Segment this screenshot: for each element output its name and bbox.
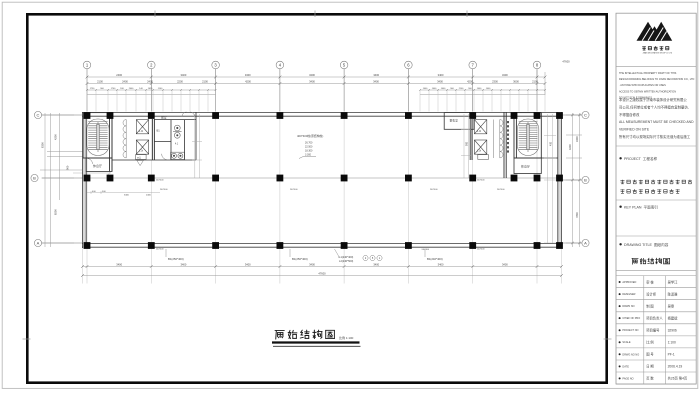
svg-text:DRAWING TITLE 图纸内容: DRAWING TITLE 图纸内容: [624, 242, 669, 247]
svg-text:本设计之版权属于济南市装饰设计研究有限公: 本设计之版权属于济南市装饰设计研究有限公: [619, 97, 687, 102]
svg-text:2200: 2200: [177, 79, 183, 83]
svg-text:A: A: [37, 241, 40, 246]
svg-text:2400: 2400: [147, 79, 153, 83]
svg-text:32906: 32906: [668, 329, 677, 333]
svg-text:240*400: 240*400: [156, 248, 164, 250]
svg-text:JINAN DECORATION GROUP CO LTD: JINAN DECORATION GROUP CO LTD: [643, 52, 673, 55]
svg-text:司公司,任何单位或者个人均不得擅自复制摹仿,: 司公司,任何单位或者个人均不得擅自复制摹仿,: [619, 104, 689, 109]
svg-text:DESIGNER: DESIGNER: [622, 293, 635, 296]
svg-text:审 核: 审 核: [646, 279, 654, 284]
svg-text:400*400柱(原结构柱): 400*400柱(原结构柱): [297, 134, 323, 138]
svg-text:B1: B1: [157, 129, 161, 133]
svg-text:A: A: [584, 241, 587, 246]
svg-text:240*400: 240*400: [156, 179, 164, 181]
svg-text:B1(250*400): B1(250*400): [292, 257, 308, 261]
svg-text:ALL MEASUREMENT MUST BE CHECKE: ALL MEASUREMENT MUST BE CHECKED AND: [619, 120, 694, 124]
svg-text:不得擅自修改: 不得擅自修改: [619, 112, 640, 117]
svg-text:B1(240*400): B1(240*400): [427, 257, 443, 261]
svg-text:KEY PLAN 平面索引: KEY PLAN 平面索引: [624, 204, 658, 209]
svg-text:PF-1: PF-1: [668, 353, 675, 357]
svg-text:杨建斌: 杨建斌: [668, 315, 679, 320]
svg-text:240*400: 240*400: [430, 189, 438, 191]
svg-text:1:100: 1:100: [668, 341, 676, 345]
svg-text:休息厅: 休息厅: [93, 163, 102, 168]
svg-text:3600: 3600: [513, 79, 519, 83]
svg-text:B1(250*400): B1(250*400): [168, 257, 184, 261]
svg-text:PROJECT NO: PROJECT NO: [622, 329, 638, 332]
svg-text:2300: 2300: [492, 79, 498, 83]
svg-text:1.0t: 1.0t: [139, 150, 143, 153]
svg-text:3.300: 3.300: [305, 154, 312, 157]
svg-text:2100: 2100: [97, 79, 103, 83]
svg-text:240*400: 240*400: [422, 249, 430, 251]
svg-text:项目编号: 项目编号: [646, 328, 660, 333]
svg-text:4200: 4200: [568, 144, 572, 150]
svg-text:VERIFIED ON SITE: VERIFIED ON SITE: [619, 128, 650, 132]
svg-text:240*400: 240*400: [497, 189, 505, 191]
svg-text:6300: 6300: [41, 142, 45, 148]
svg-text:DESIGN DRAWING BELONGS TO JINA: DESIGN DRAWING BELONGS TO JINAN DECORATI…: [619, 78, 694, 81]
svg-text:3400: 3400: [116, 262, 122, 266]
svg-text:B: B: [33, 176, 36, 181]
svg-text:DRWG NO NO: DRWG NO NO: [622, 353, 639, 356]
svg-text:2100: 2100: [532, 79, 538, 83]
svg-text:PAGE NO: PAGE NO: [622, 377, 633, 380]
svg-text:比 例: 比 例: [646, 340, 654, 345]
svg-text:3400: 3400: [181, 73, 187, 77]
svg-text:THE INTELLECTUAL PROPERTY RIGH: THE INTELLECTUAL PROPERTY RIGHT OF THIS: [619, 72, 677, 75]
svg-text:3400: 3400: [373, 79, 379, 83]
svg-text:L2(240*500): L2(240*500): [339, 259, 353, 263]
svg-text:7800: 7800: [575, 212, 579, 218]
svg-text:400: 400: [549, 141, 552, 146]
svg-text:前室: 前室: [161, 115, 167, 119]
svg-text:更衣室: 更衣室: [450, 119, 459, 123]
svg-text:3400: 3400: [245, 262, 251, 266]
svg-text:3400: 3400: [502, 73, 508, 77]
svg-text:3400: 3400: [245, 73, 251, 77]
svg-text:制 图: 制 图: [646, 303, 654, 308]
svg-text:DRWN NO: DRWN NO: [622, 305, 634, 308]
svg-text:3400: 3400: [438, 73, 444, 77]
svg-text:M口: M口: [137, 156, 141, 159]
svg-text:吴雯: 吴雯: [668, 303, 675, 308]
svg-text:图 号: 图 号: [646, 352, 654, 357]
svg-text:3400: 3400: [575, 136, 579, 142]
svg-text:4200: 4200: [54, 134, 58, 140]
svg-text:2400: 2400: [116, 73, 122, 77]
svg-text:日 期: 日 期: [646, 364, 654, 369]
svg-text:2100: 2100: [202, 79, 208, 83]
svg-text:3400: 3400: [437, 79, 443, 83]
svg-text:B: B: [584, 178, 587, 183]
svg-text:26.700: 26.700: [305, 142, 313, 145]
svg-text:3400: 3400: [373, 73, 379, 77]
svg-text:吴学江: 吴学江: [668, 279, 679, 284]
svg-text:240*400: 240*400: [160, 189, 168, 191]
svg-text:页 数: 页 数: [646, 376, 654, 381]
svg-text:DATE: DATE: [622, 365, 629, 368]
svg-text:所有尺寸均以现场实际尺寸核实无误为准后施工: 所有尺寸均以现场实际尺寸核实无误为准后施工: [619, 134, 691, 139]
svg-text:陈潇雅: 陈潇雅: [668, 291, 679, 296]
svg-text:900: 900: [66, 165, 70, 170]
svg-text:项目负责人: 项目负责人: [646, 315, 663, 320]
svg-text:CHIEF OF PRO: CHIEF OF PRO: [622, 317, 640, 320]
svg-text:240*400: 240*400: [477, 248, 485, 250]
svg-text:4200: 4200: [467, 79, 473, 83]
svg-text:PROJECT 工程名称: PROJECT 工程名称: [624, 156, 658, 161]
svg-text:. ANYONE WHO DUPLICATES OR USE: . ANYONE WHO DUPLICATES OR USES: [619, 84, 666, 87]
svg-text:240*400: 240*400: [290, 189, 298, 191]
svg-text:240*400: 240*400: [477, 179, 485, 181]
svg-text:1.0t: 1.0t: [477, 130, 481, 133]
svg-text:3400: 3400: [438, 262, 444, 266]
svg-text:3400: 3400: [124, 195, 130, 197]
svg-text:1.0t: 1.0t: [477, 150, 481, 153]
svg-text:3400: 3400: [502, 262, 508, 266]
svg-text:设计师: 设计师: [646, 291, 657, 296]
svg-text:1.0t: 1.0t: [139, 130, 143, 133]
svg-text:3400: 3400: [181, 262, 187, 266]
svg-text:2006.4.19: 2006.4.19: [668, 365, 683, 369]
svg-text:47600: 47600: [318, 271, 326, 275]
svg-text:3400: 3400: [309, 79, 315, 83]
svg-text:共26页 第4页: 共26页 第4页: [668, 376, 688, 381]
svg-text:3400: 3400: [309, 262, 315, 266]
svg-text:900: 900: [466, 141, 469, 146]
svg-text:3400: 3400: [373, 262, 379, 266]
svg-text:APPROVED: APPROVED: [622, 281, 636, 284]
svg-text:休息厅: 休息厅: [521, 164, 530, 169]
svg-text:18.300: 18.300: [305, 150, 313, 153]
svg-text:4200: 4200: [245, 79, 251, 83]
svg-text:3400: 3400: [309, 73, 315, 77]
svg-text:比例 1:100: 比例 1:100: [339, 335, 354, 340]
svg-text:C: C: [584, 113, 587, 118]
svg-text:2400: 2400: [122, 79, 128, 83]
svg-text:SCALE: SCALE: [622, 341, 631, 344]
svg-text:C: C: [37, 113, 40, 118]
svg-text:6500: 6500: [54, 209, 58, 215]
svg-text:L1(240*400): L1(240*400): [339, 255, 353, 259]
svg-text:2400: 2400: [146, 195, 152, 197]
svg-text:47600: 47600: [562, 60, 570, 64]
svg-text:ACCESS TO OBTAIN WRITTEN AUTHO: ACCESS TO OBTAIN WRITTEN AUTHORIZATION: [619, 90, 676, 93]
svg-text:22.500: 22.500: [305, 146, 313, 149]
